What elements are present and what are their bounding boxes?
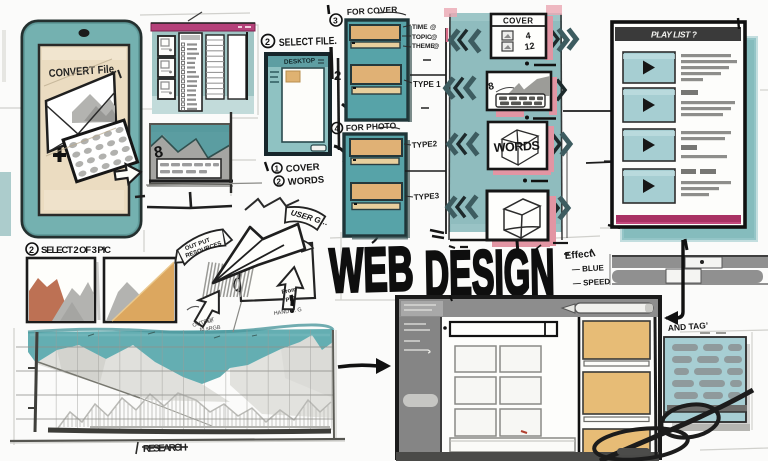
svg-text:RESEARCH: RESEARCH xyxy=(143,442,187,455)
svg-text:— BLUE: — BLUE xyxy=(572,263,605,274)
svg-text:3: 3 xyxy=(333,16,338,26)
svg-text:TIME: TIME xyxy=(412,24,428,31)
svg-text:WORDS: WORDS xyxy=(493,139,540,155)
svg-text:2: 2 xyxy=(334,68,341,83)
svg-text:COVER: COVER xyxy=(503,17,533,26)
svg-text:PLAY LIST ?: PLAY LIST ? xyxy=(651,30,698,40)
svg-text:4: 4 xyxy=(335,125,340,134)
svg-text:@: @ xyxy=(431,34,437,41)
svg-text:@: @ xyxy=(433,43,439,50)
svg-text:TYPE3: TYPE3 xyxy=(414,191,440,202)
svg-text:2: 2 xyxy=(277,178,282,187)
svg-text:@: @ xyxy=(430,24,436,31)
svg-text:2: 2 xyxy=(265,37,270,47)
svg-text:TOPIC: TOPIC xyxy=(412,34,432,41)
svg-text:12: 12 xyxy=(524,41,535,52)
svg-text:TYPE2: TYPE2 xyxy=(412,139,438,150)
svg-text:2: 2 xyxy=(29,245,34,255)
svg-text:THEME: THEME xyxy=(412,43,435,50)
svg-text:TYPE 1: TYPE 1 xyxy=(413,80,441,89)
svg-text:SELECT FILE.: SELECT FILE. xyxy=(279,35,337,49)
svg-text:SELECT 2 OF 3 PIC: SELECT 2 OF 3 PIC xyxy=(41,245,111,256)
svg-text:1: 1 xyxy=(275,165,280,174)
